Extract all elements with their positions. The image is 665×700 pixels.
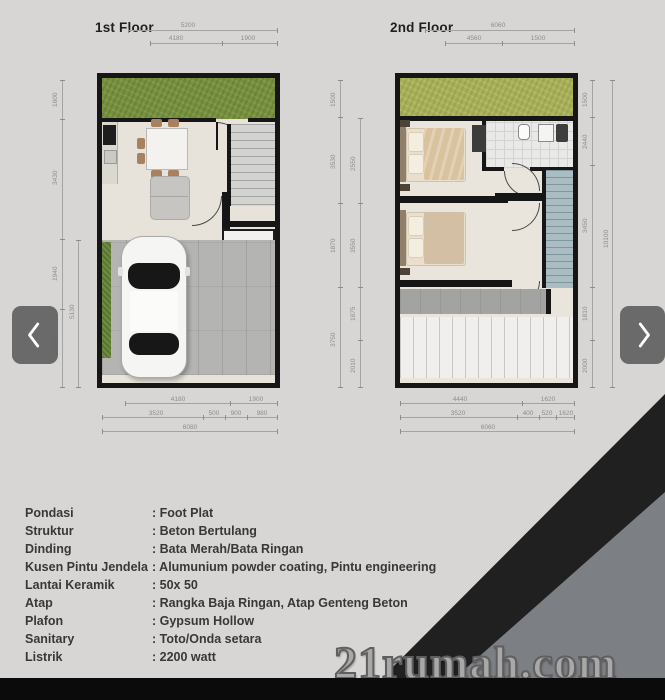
dim-label: 6060 — [478, 22, 518, 29]
nightstand — [400, 268, 410, 275]
dim-tick — [60, 239, 65, 240]
dimension-line — [128, 30, 278, 31]
spec-label: Listrik — [25, 650, 152, 664]
kitchen-sink — [104, 150, 117, 164]
car — [121, 236, 187, 378]
chevron-left-icon — [24, 320, 46, 350]
screenshot-root: 1st Floor 5200 4180 1900 1600 3430 19 — [0, 0, 665, 700]
dimension-line — [78, 240, 79, 388]
dim-label: 1620 — [532, 396, 564, 403]
dim-label: 3530 — [330, 148, 337, 176]
dim-tick — [358, 203, 363, 204]
dim-label: 3430 — [52, 164, 59, 192]
spec-label: Plafon — [25, 614, 152, 628]
dim-label: 6080 — [172, 424, 208, 431]
spec-label: Kusen Pintu Jendela — [25, 560, 152, 574]
dim-tick — [590, 340, 595, 341]
dim-label: 10100 — [603, 222, 610, 256]
dim-label: 400 — [518, 410, 538, 417]
dim-label: 500 — [204, 410, 224, 417]
dimension-line — [360, 118, 361, 388]
dim-label: 2000 — [582, 352, 589, 380]
chair — [137, 138, 145, 149]
dim-label: 2550 — [350, 150, 357, 178]
pillow — [408, 154, 424, 174]
car-mirror — [118, 267, 123, 276]
dimension-line — [340, 80, 341, 388]
spec-value: : Toto/Onda setara — [152, 632, 262, 646]
wall — [230, 221, 275, 227]
blanket — [424, 212, 464, 264]
dim-label: 1500 — [330, 86, 337, 114]
dim-label: 4180 — [160, 396, 196, 403]
floor1-stairs — [231, 124, 275, 206]
dim-tick — [230, 401, 231, 406]
dim-tick — [590, 117, 595, 118]
dim-label: 3520 — [440, 410, 476, 417]
spec-row: Struktur: Beton Bertulang — [25, 522, 585, 540]
spec-value: : 2200 watt — [152, 650, 216, 664]
stove — [103, 125, 116, 145]
dim-label: 5200 — [168, 22, 208, 29]
dim-label: 1600 — [52, 86, 59, 114]
dimension-line — [592, 80, 593, 388]
spec-label: Atap — [25, 596, 152, 610]
dim-tick — [358, 287, 363, 288]
chair — [151, 119, 162, 127]
floor2-title: 2nd Floor — [390, 20, 453, 35]
dim-label: 2440 — [582, 128, 589, 156]
spec-label: Dinding — [25, 542, 152, 556]
spec-value: : Rangka Baja Ringan, Atap Genteng Beton — [152, 596, 408, 610]
dimension-line — [400, 431, 575, 432]
wall — [482, 167, 504, 171]
dim-tick — [590, 165, 595, 166]
dim-label: 1875 — [350, 300, 357, 328]
dim-tick — [590, 287, 595, 288]
dim-label: 1620 — [554, 410, 578, 417]
dim-tick — [222, 41, 223, 46]
car-mirror — [185, 267, 190, 276]
nightstand — [400, 184, 410, 191]
dim-label: 1900 — [238, 396, 274, 403]
spec-label: Sanitary — [25, 632, 152, 646]
dim-label: 5130 — [69, 298, 76, 326]
blanket — [424, 128, 464, 180]
hedge — [102, 242, 111, 358]
dim-label: 1500 — [582, 86, 589, 114]
dimension-line — [102, 417, 278, 418]
wall — [546, 289, 551, 314]
spec-row: Pondasi: Foot Plat — [25, 504, 585, 522]
pillow — [408, 132, 424, 152]
spec-label: Struktur — [25, 524, 152, 538]
pillow — [408, 238, 424, 258]
carport-roof — [400, 317, 573, 378]
spec-value: : 50x 50 — [152, 578, 198, 592]
spec-value: : Foot Plat — [152, 506, 213, 520]
dim-label: 6060 — [470, 424, 506, 431]
car-roof — [130, 291, 178, 331]
dimension-line — [400, 417, 575, 418]
spec-value: : Alumunium powder coating, Pintu engine… — [152, 560, 436, 574]
sofa — [150, 176, 190, 220]
wall — [248, 118, 275, 122]
balcony — [400, 289, 546, 314]
car-rear-window — [129, 333, 179, 355]
dim-tick — [338, 117, 343, 118]
dimension-line — [612, 80, 613, 388]
bottom-black-bar — [0, 678, 665, 700]
floor1-garden — [102, 78, 275, 119]
dim-label: 3520 — [138, 410, 174, 417]
spec-value: : Bata Merah/Bata Ringan — [152, 542, 303, 556]
dim-label: 1870 — [330, 232, 337, 260]
dimension-line — [102, 431, 278, 432]
dimension-line — [425, 30, 575, 31]
door-leaf — [216, 122, 218, 150]
dim-tick — [60, 309, 65, 310]
wall — [495, 193, 545, 201]
chair — [168, 119, 179, 127]
dimension-line — [150, 43, 278, 44]
dimension-line — [125, 403, 278, 404]
dim-label: 1500 — [522, 35, 554, 42]
floor2-stairs — [546, 170, 573, 288]
spec-value: : Gypsum Hollow — [152, 614, 254, 628]
wall — [400, 196, 508, 203]
shower — [538, 124, 554, 142]
wardrobe — [472, 125, 486, 152]
chair — [137, 153, 145, 164]
bathroom-sink — [556, 124, 568, 142]
pillow — [408, 216, 424, 236]
chevron-right-icon — [632, 320, 654, 350]
dim-tick — [60, 119, 65, 120]
dim-label: 4440 — [442, 396, 478, 403]
prev-image-button[interactable] — [12, 306, 58, 364]
dim-label: 1940 — [52, 260, 59, 288]
dim-tick — [502, 41, 503, 46]
dimension-line — [400, 403, 575, 404]
dim-label: 3450 — [582, 212, 589, 240]
wall — [400, 280, 512, 287]
sofa-cushion-line — [150, 196, 188, 197]
floor2-roof-garden — [400, 78, 573, 117]
dim-label: 3750 — [330, 326, 337, 354]
dim-tick — [358, 340, 363, 341]
dim-tick — [522, 401, 523, 406]
spec-label: Lantai Keramik — [25, 578, 152, 592]
toilet — [518, 124, 530, 140]
dim-label: 4180 — [160, 35, 192, 42]
dim-tick — [338, 287, 343, 288]
dimension-line — [445, 43, 575, 44]
dim-tick — [338, 203, 343, 204]
floor1-title: 1st Floor — [95, 20, 154, 35]
dim-label: 2010 — [350, 352, 357, 380]
dining-table — [146, 128, 188, 170]
nightstand — [400, 120, 410, 127]
dim-label: 1810 — [582, 300, 589, 328]
spec-label: Pondasi — [25, 506, 152, 520]
dim-label: 3550 — [350, 232, 357, 260]
car-windshield — [128, 263, 180, 289]
next-image-button[interactable] — [620, 306, 665, 364]
dim-label: 4560 — [458, 35, 490, 42]
dimension-line — [62, 80, 63, 388]
dim-label: 900 — [226, 410, 246, 417]
spec-row: Dinding: Bata Merah/Bata Ringan — [25, 540, 585, 558]
dim-label: 980 — [250, 410, 274, 417]
dim-label: 1900 — [232, 35, 264, 42]
spec-value: : Beton Bertulang — [152, 524, 257, 538]
dim-tick — [247, 415, 248, 420]
